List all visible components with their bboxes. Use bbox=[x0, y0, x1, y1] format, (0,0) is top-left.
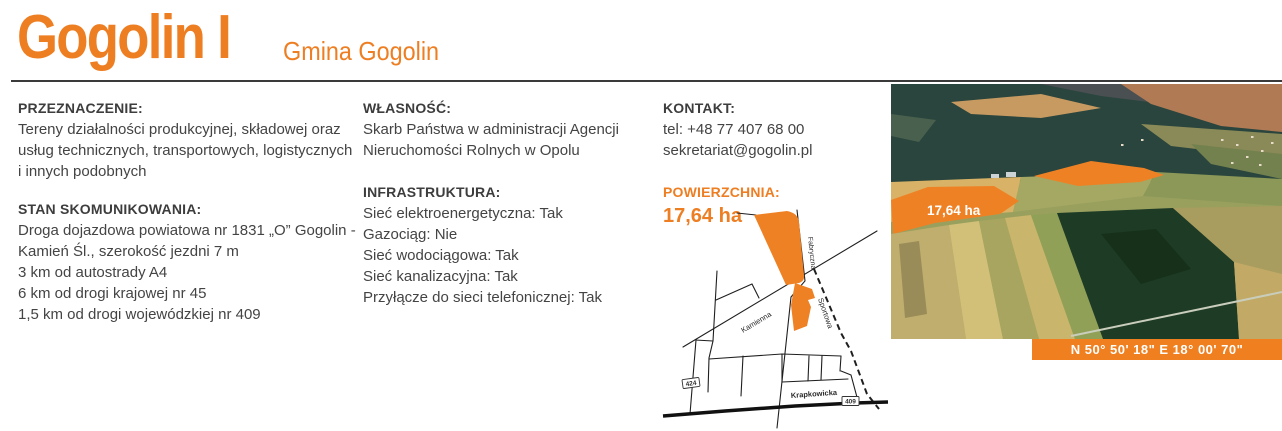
section-heading: INFRASTRUKTURA: bbox=[363, 182, 602, 203]
phone-number: tel: +48 77 407 68 00 bbox=[663, 119, 812, 140]
text-line: Sieć elektroenergetyczna: Tak bbox=[363, 203, 602, 224]
section-stan-skomunikowania: STAN SKOMUNIKOWANIA: Droga dojazdowa pow… bbox=[18, 199, 356, 325]
map-street-label-sportowa: Sportowa bbox=[816, 297, 835, 331]
section-wlasnosc: WŁASNOŚĆ: Skarb Państwa w administracji … bbox=[363, 98, 619, 161]
map-road-badge-424: 424 bbox=[682, 377, 700, 388]
text-line: Droga dojazdowa powiatowa nr 1831 „O” Go… bbox=[18, 220, 356, 241]
photo-area-label: 17,64 ha bbox=[927, 203, 981, 218]
page-subtitle: Gmina Gogolin bbox=[283, 36, 439, 67]
map-road bbox=[709, 354, 841, 359]
map-parcel-south bbox=[791, 283, 815, 331]
text-line: Gazociąg: Nie bbox=[363, 224, 602, 245]
coordinates-banner: N 50° 50' 18" E 18° 00' 70" bbox=[1032, 339, 1282, 360]
section-kontakt: KONTAKT: tel: +48 77 407 68 00 sekretari… bbox=[663, 98, 812, 161]
page-title: Gogolin I bbox=[17, 2, 230, 73]
section-infrastruktura: INFRASTRUKTURA: Sieć elektroenergetyczna… bbox=[363, 182, 602, 308]
section-heading: PRZEZNACZENIE: bbox=[18, 98, 352, 119]
text-line: i innych podobnych bbox=[18, 161, 352, 182]
map-road bbox=[690, 340, 713, 414]
header-divider bbox=[11, 80, 1282, 82]
map-street-label-kamienna: Kamienna bbox=[739, 309, 773, 335]
map-road bbox=[737, 213, 756, 215]
text-line: Nieruchomości Rolnych w Opolu bbox=[363, 140, 619, 161]
section-heading: KONTAKT: bbox=[663, 98, 812, 119]
section-heading: WŁASNOŚĆ: bbox=[363, 98, 619, 119]
map-badge-label: 409 bbox=[845, 399, 856, 406]
aerial-photo: 17,64 ha bbox=[891, 84, 1282, 339]
text-line: Sieć wodociągowa: Tak bbox=[363, 245, 602, 266]
text-line: Przyłącze do sieci telefonicznej: Tak bbox=[363, 287, 602, 308]
section-heading: STAN SKOMUNIKOWANIA: bbox=[18, 199, 356, 220]
map-street-label-fabryczna: Fabryczna bbox=[806, 236, 816, 269]
section-przeznaczenie: PRZEZNACZENIE: Tereny działalności produ… bbox=[18, 98, 352, 182]
text-line: Kamień Śl., szerokość jezdni 7 m bbox=[18, 241, 356, 262]
text-line: Sieć kanalizacyjna: Tak bbox=[363, 266, 602, 287]
text-line: 1,5 km od drogi wojewódzkiej nr 409 bbox=[18, 304, 356, 325]
map-road-badge-409: 409 bbox=[842, 397, 859, 406]
text-line: usług technicznych, transportowych, logi… bbox=[18, 140, 352, 161]
text-line: 3 km od autostrady A4 bbox=[18, 262, 356, 283]
location-sketch-map: Fabryczna Kamienna Sportowa Krapkowicka … bbox=[655, 195, 890, 431]
text-line: Skarb Państwa w administracji Agencji bbox=[363, 119, 619, 140]
text-line: Tereny działalności produkcyjnej, składo… bbox=[18, 119, 352, 140]
text-line: 6 km od drogi krajowej nr 45 bbox=[18, 283, 356, 304]
map-parcel-north bbox=[754, 211, 804, 285]
map-street-label-krapkowicka: Krapkowicka bbox=[791, 388, 839, 400]
email-address: sekretariat@gogolin.pl bbox=[663, 140, 812, 161]
map-road bbox=[716, 284, 759, 300]
